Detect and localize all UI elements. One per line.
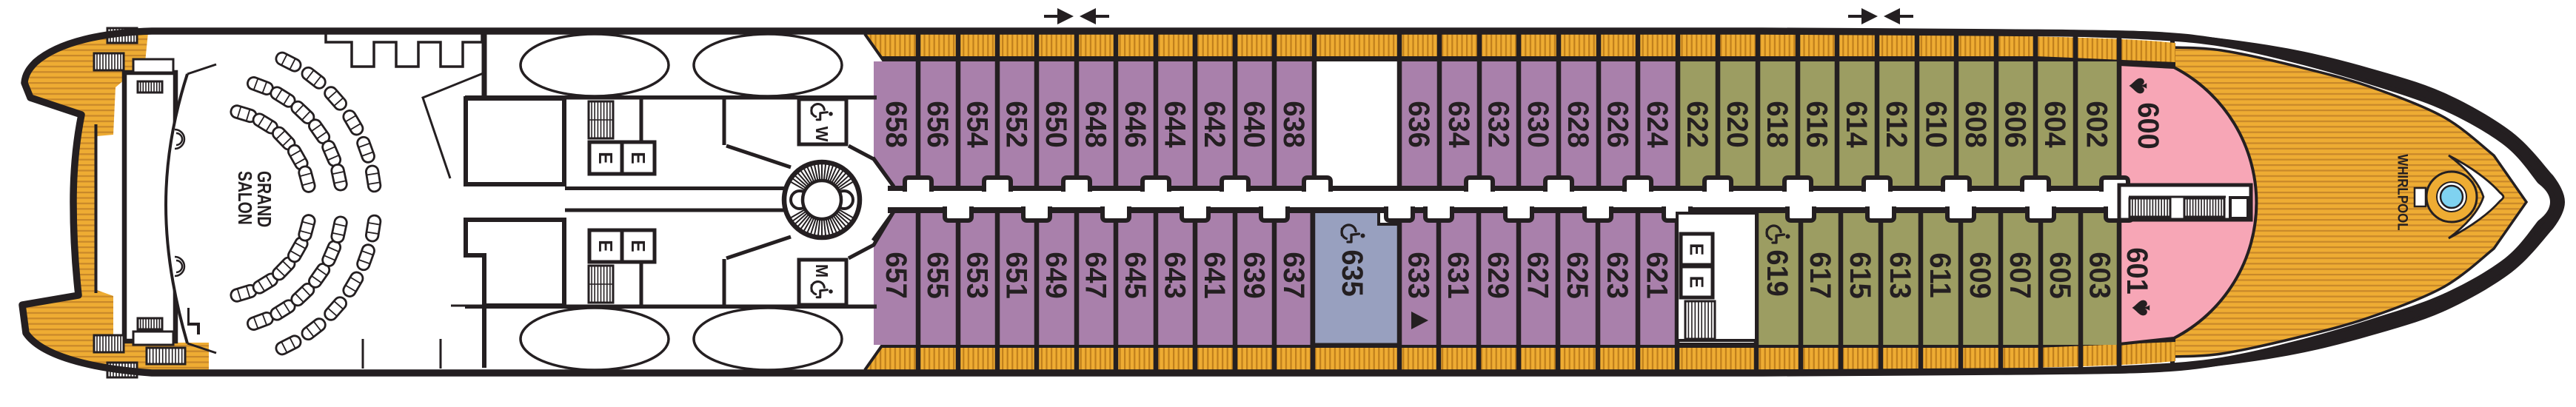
svg-text:657: 657 <box>880 252 912 298</box>
svg-text:649: 649 <box>1040 252 1072 298</box>
svg-text:645: 645 <box>1119 252 1151 298</box>
svg-text:640: 640 <box>1237 101 1270 147</box>
svg-text:608: 608 <box>1959 101 1992 147</box>
svg-text:634: 634 <box>1442 101 1475 148</box>
svg-text:610: 610 <box>1919 101 1952 147</box>
svg-text:631: 631 <box>1442 252 1474 298</box>
svg-text:644: 644 <box>1158 101 1191 148</box>
svg-text:600: 600 <box>2132 102 2164 149</box>
svg-text:647: 647 <box>1079 252 1111 298</box>
svg-text:651: 651 <box>1000 252 1032 298</box>
svg-text:648: 648 <box>1079 101 1111 147</box>
svg-text:654: 654 <box>960 101 993 148</box>
svg-text:650: 650 <box>1040 101 1072 147</box>
svg-text:628: 628 <box>1562 101 1594 147</box>
svg-text:605: 605 <box>2044 252 2076 298</box>
svg-text:E: E <box>595 152 616 164</box>
svg-text:609: 609 <box>1964 252 1996 298</box>
svg-text:E: E <box>1685 243 1707 255</box>
svg-text:652: 652 <box>1000 101 1032 147</box>
svg-text:601: 601 <box>2121 247 2153 294</box>
svg-text:623: 623 <box>1601 252 1633 298</box>
svg-text:602: 602 <box>2080 101 2112 147</box>
svg-text:635: 635 <box>1336 249 1368 296</box>
svg-text:607: 607 <box>2004 252 2036 298</box>
svg-text:615: 615 <box>1844 252 1876 298</box>
svg-text:642: 642 <box>1198 101 1231 147</box>
svg-text:E: E <box>627 240 649 252</box>
svg-text:E: E <box>595 240 616 252</box>
svg-text:M: M <box>812 264 832 277</box>
svg-text:SALON: SALON <box>234 171 255 225</box>
svg-text:629: 629 <box>1482 252 1514 298</box>
svg-text:622: 622 <box>1681 101 1713 147</box>
svg-text:603: 603 <box>2083 252 2115 298</box>
svg-text:639: 639 <box>1237 252 1270 298</box>
svg-text:656: 656 <box>921 101 954 147</box>
svg-text:611: 611 <box>1924 252 1956 297</box>
svg-text:606: 606 <box>1998 101 2031 147</box>
svg-text:638: 638 <box>1277 101 1310 147</box>
svg-text:632: 632 <box>1482 101 1514 147</box>
svg-text:625: 625 <box>1561 252 1593 298</box>
svg-text:633: 633 <box>1402 252 1434 298</box>
svg-text:614: 614 <box>1840 101 1873 148</box>
svg-text:616: 616 <box>1800 101 1833 147</box>
svg-text:E: E <box>1685 276 1707 288</box>
svg-text:WHIRLPOOL: WHIRLPOOL <box>2395 154 2410 230</box>
svg-text:624: 624 <box>1641 101 1673 148</box>
svg-text:617: 617 <box>1804 252 1836 298</box>
svg-text:658: 658 <box>880 101 912 147</box>
svg-text:655: 655 <box>921 252 954 298</box>
svg-text:612: 612 <box>1880 101 1913 147</box>
svg-text:646: 646 <box>1119 101 1151 147</box>
svg-text:653: 653 <box>960 252 993 298</box>
svg-text:W: W <box>812 127 832 142</box>
svg-text:GRAND: GRAND <box>253 171 275 227</box>
svg-text:613: 613 <box>1884 252 1916 298</box>
svg-text:621: 621 <box>1640 252 1673 298</box>
svg-text:604: 604 <box>2038 101 2071 148</box>
svg-text:E: E <box>627 152 649 164</box>
svg-text:637: 637 <box>1277 252 1310 298</box>
svg-text:627: 627 <box>1521 252 1553 298</box>
svg-text:641: 641 <box>1198 252 1231 298</box>
svg-text:626: 626 <box>1601 101 1633 147</box>
svg-text:618: 618 <box>1761 101 1793 147</box>
svg-text:643: 643 <box>1158 252 1191 298</box>
svg-text:630: 630 <box>1522 101 1554 147</box>
svg-text:619: 619 <box>1761 249 1793 296</box>
svg-text:620: 620 <box>1721 101 1753 147</box>
svg-text:636: 636 <box>1402 101 1435 147</box>
